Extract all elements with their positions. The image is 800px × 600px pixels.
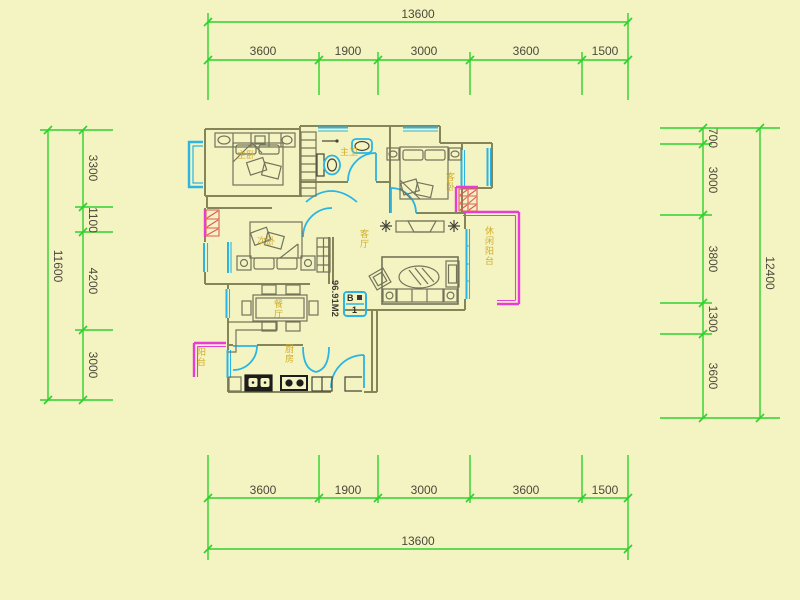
dim-bottom-seg: 1500 [592, 483, 619, 497]
dim-right-seg: 700 [706, 128, 720, 148]
kitchen-fixtures [228, 322, 362, 391]
unit-badge-bottom: 1 [352, 305, 357, 315]
furniture [215, 132, 461, 391]
dim-right-seg: 3000 [706, 167, 720, 194]
room-label-master-bedroom: 主卧 [237, 151, 255, 160]
dim-top-seg: 1500 [592, 44, 619, 58]
dim-top-seg: 3600 [513, 44, 540, 58]
room-label-leisure-balcony: 休闲阳台 [484, 226, 493, 266]
dim-bottom-seg: 3600 [513, 483, 540, 497]
room-label-living-room: 客厅 [359, 229, 368, 249]
dim-left-seg: 1100 [86, 207, 100, 233]
dim-top-seg: 1900 [335, 44, 362, 58]
dim-left-seg: 3300 [86, 155, 100, 182]
room-label-guest-bedroom: 客卧 [445, 172, 454, 192]
living-room-furniture [369, 220, 460, 304]
area-label: 96.91M2 [329, 280, 340, 317]
dim-right-seg: 3600 [706, 363, 720, 390]
room-label-second-bedroom: 次卧 [257, 237, 275, 246]
dim-left-seg: 4200 [86, 268, 100, 295]
second-bed [237, 222, 330, 272]
balcony-railings [194, 187, 519, 377]
room-label-bathroom: 主卫 [340, 148, 358, 157]
dim-top-seg: 3600 [250, 44, 277, 58]
dim-right-seg: 1300 [706, 306, 720, 333]
room-label-balcony: 阳台 [196, 347, 205, 367]
dim-bottom-seg: 3600 [250, 483, 277, 497]
dim-right-seg: 3800 [706, 246, 720, 273]
dim-bottom-seg: 1900 [335, 483, 362, 497]
dim-bottom-total: 13600 [401, 534, 434, 548]
dim-left-seg: 3000 [86, 352, 100, 379]
dim-right-total: 12400 [763, 256, 777, 289]
floor-plan-drawing [0, 0, 800, 600]
room-label-kitchen: 厨房 [284, 344, 293, 364]
doors [233, 153, 416, 388]
dim-left-total: 11600 [51, 250, 65, 282]
dim-top-seg: 3000 [411, 44, 438, 58]
dim-top-total: 13600 [401, 7, 434, 21]
bathroom-fixtures [301, 132, 372, 196]
room-label-dining-room: 餐厅 [273, 299, 282, 319]
unit-badge-top: B [347, 293, 354, 303]
dim-bottom-seg: 3000 [411, 483, 438, 497]
floor-plan-screenshot: 13600 3600 1900 3000 3600 1500 3600 1900… [0, 0, 800, 600]
